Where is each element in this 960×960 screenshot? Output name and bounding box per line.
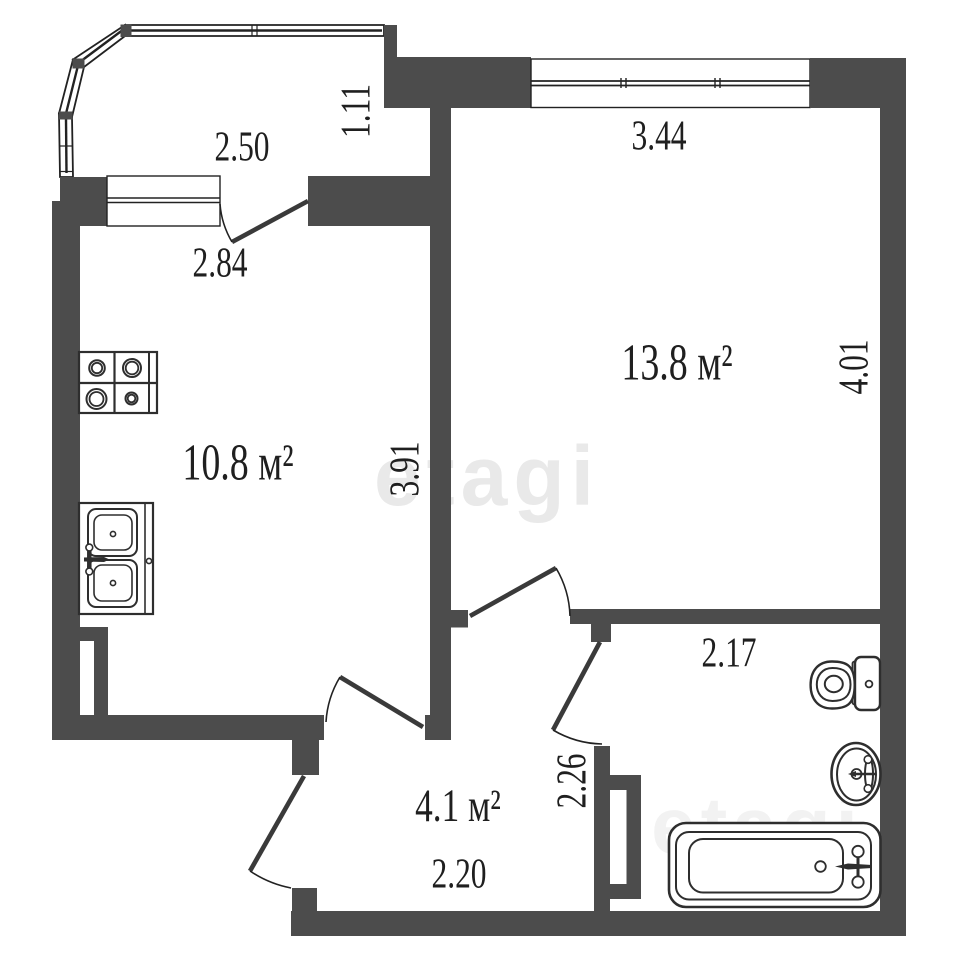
svg-text:1.11: 1.11 bbox=[333, 84, 379, 138]
svg-text:4.01: 4.01 bbox=[831, 339, 877, 394]
svg-text:10.8 м²: 10.8 м² bbox=[182, 433, 293, 491]
svg-text:2.17: 2.17 bbox=[701, 630, 756, 676]
svg-text:2.20: 2.20 bbox=[431, 851, 486, 897]
svg-text:3.44: 3.44 bbox=[631, 113, 686, 159]
svg-text:2.84: 2.84 bbox=[192, 240, 247, 286]
svg-text:4.1 м²: 4.1 м² bbox=[415, 779, 501, 831]
svg-text:13.8 м²: 13.8 м² bbox=[621, 333, 732, 391]
svg-text:3.91: 3.91 bbox=[382, 441, 428, 496]
svg-text:2.26: 2.26 bbox=[549, 753, 595, 808]
svg-text:2.50: 2.50 bbox=[214, 124, 269, 170]
